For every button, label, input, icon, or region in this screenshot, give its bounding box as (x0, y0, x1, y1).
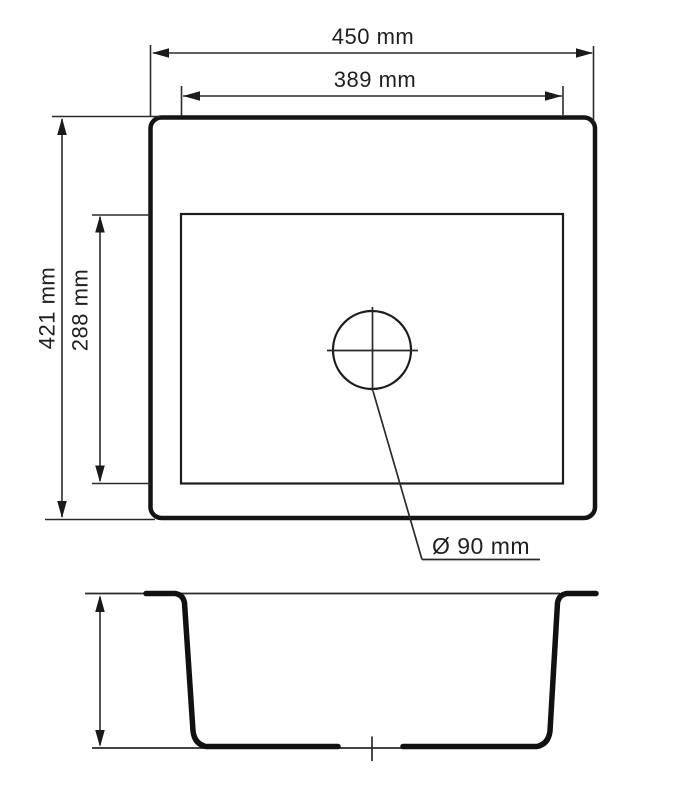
arrow-left-icon (152, 48, 169, 58)
dim-bowl-width: 389 mm (182, 67, 564, 116)
arrow-down-icon (95, 466, 105, 483)
arrow-up-icon (95, 595, 105, 612)
section-view (85, 594, 596, 762)
bowl-width-label: 389 mm (334, 67, 416, 92)
bowl-depth-label: 288 mm (68, 269, 93, 351)
drain-diameter-label: Ø 90 mm (432, 533, 530, 559)
arrow-left-icon (183, 91, 200, 101)
dim-overall-depth: 421 mm (35, 117, 161, 520)
sink-technical-drawing: Ø 90 mm 450 mm 389 mm 421 mm 288 mm (0, 0, 683, 800)
arrow-down-icon (95, 730, 105, 747)
drawing-svg: Ø 90 mm 450 mm 389 mm 421 mm 288 mm (0, 0, 683, 800)
arrow-up-icon (95, 216, 105, 233)
bowl-profile-right (403, 594, 596, 747)
dim-bowl-depth: 288 mm (68, 215, 151, 484)
arrow-down-icon (57, 501, 67, 518)
drain-leader-line (373, 391, 422, 560)
arrow-right-icon (545, 91, 562, 101)
arrow-right-icon (576, 48, 593, 58)
plan-view: Ø 90 mm (151, 118, 596, 560)
overall-depth-label: 421 mm (35, 267, 60, 349)
bowl-profile-left (146, 594, 338, 747)
overall-width-label: 450 mm (332, 24, 414, 49)
arrow-up-icon (57, 118, 67, 135)
